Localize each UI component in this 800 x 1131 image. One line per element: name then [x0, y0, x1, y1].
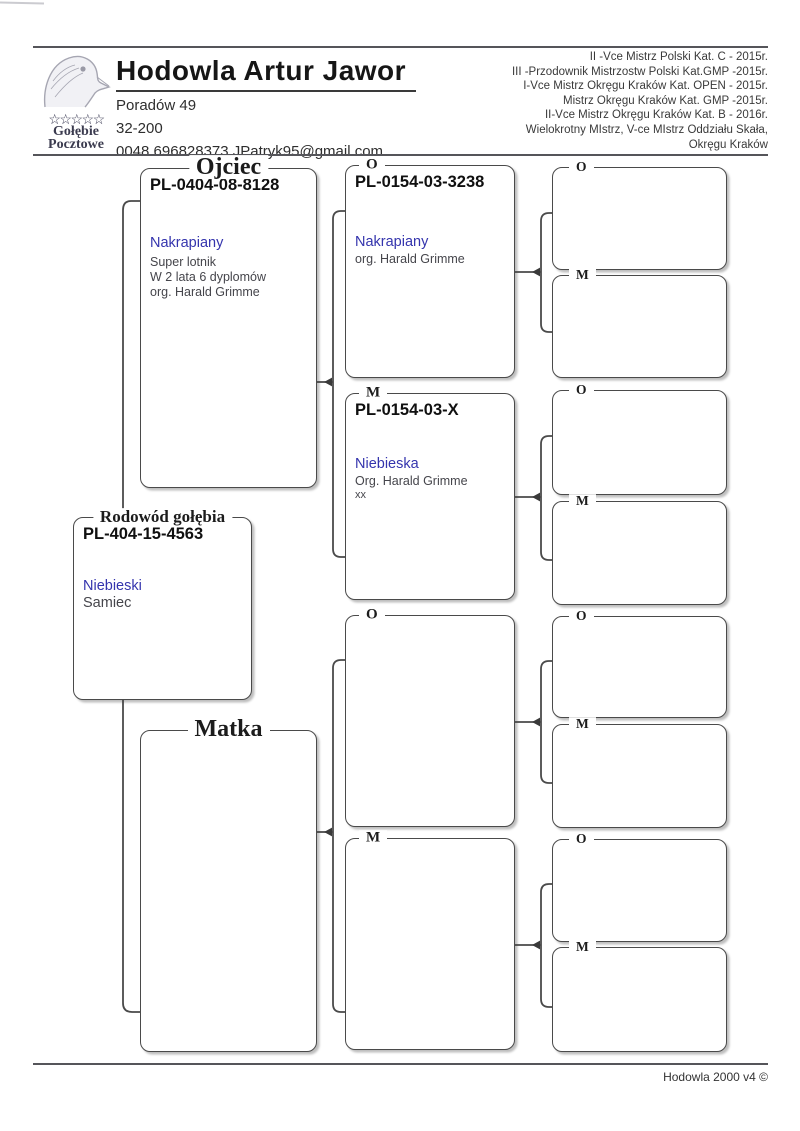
box-legend: O — [569, 832, 594, 846]
connector-arrow-icon — [532, 268, 540, 277]
box-legend: Rodowód gołębia — [93, 508, 232, 525]
color-name: Nakrapiany — [355, 234, 505, 250]
pedigree-box-gen4-5: O — [552, 616, 727, 718]
box-legend: O — [569, 160, 594, 174]
color-name: Nakrapiany — [150, 235, 307, 251]
ring-number: PL-0154-03-X — [355, 401, 505, 420]
pedigree-box-gen4-6: M — [552, 724, 727, 828]
pedigree-box-gen4-1: O — [552, 167, 727, 270]
pedigree-box-gen3-1: O PL-0154-03-3238 Nakrapiany org. Harald… — [345, 165, 515, 378]
pedigree-box-gen4-3: O — [552, 390, 727, 495]
box-legend: M — [569, 717, 596, 731]
box-legend: M — [569, 940, 596, 954]
box-legend: Ojciec — [189, 155, 268, 179]
box-legend: M — [569, 268, 596, 282]
connector-arrow-icon — [324, 828, 332, 837]
pedigree-box-gen3-4: M — [345, 838, 515, 1050]
pedigree-box-gen3-3: O — [345, 615, 515, 827]
detail-line: Super lotnik — [150, 255, 307, 270]
detail-line: Samiec — [83, 594, 242, 612]
color-name: Niebieski — [83, 578, 242, 594]
pedigree-box-gen3-2: M PL-0154-03-X Niebieska Org. Harald Gri… — [345, 393, 515, 600]
connector-arrow-icon — [532, 718, 540, 727]
detail-line: Org. Harald Grimme — [355, 474, 505, 489]
detail-line: org. Harald Grimme — [150, 285, 307, 300]
box-legend: M — [359, 385, 387, 400]
pedigree-box-gen4-4: M — [552, 501, 727, 605]
ring-number: PL-0154-03-3238 — [355, 173, 505, 192]
box-legend: M — [359, 830, 387, 845]
detail-line: org. Harald Grimme — [355, 252, 505, 267]
pedigree-box-gen4-7: O — [552, 839, 727, 942]
pedigree-document-page: ☆☆☆☆☆ Gołębie Pocztowe Hodowla Artur Jaw… — [0, 0, 800, 1131]
box-legend: Matka — [188, 717, 270, 741]
color-name: Niebieska — [355, 456, 505, 472]
detail-line: W 2 lata 6 dyplomów — [150, 270, 307, 285]
box-legend: O — [569, 383, 594, 397]
box-legend: O — [569, 609, 594, 623]
ring-number: PL-404-15-4563 — [83, 525, 242, 544]
connector-arrow-icon — [532, 493, 540, 502]
pedigree-box-gen4-2: M — [552, 275, 727, 378]
connector-arrow-icon — [532, 941, 540, 950]
pedigree-box-gen4-8: M — [552, 947, 727, 1052]
detail-line: xx — [355, 489, 505, 501]
pedigree-box-mother: Matka — [140, 730, 317, 1052]
pedigree-box-father: Ojciec PL-0404-08-8128 Nakrapiany Super … — [140, 168, 317, 488]
connector-arrow-icon — [324, 378, 332, 387]
pedigree-box-subject: Rodowód gołębia PL-404-15-4563 Niebieski… — [73, 517, 252, 700]
box-legend: O — [359, 157, 385, 172]
box-legend: O — [359, 607, 385, 622]
box-legend: M — [569, 494, 596, 508]
